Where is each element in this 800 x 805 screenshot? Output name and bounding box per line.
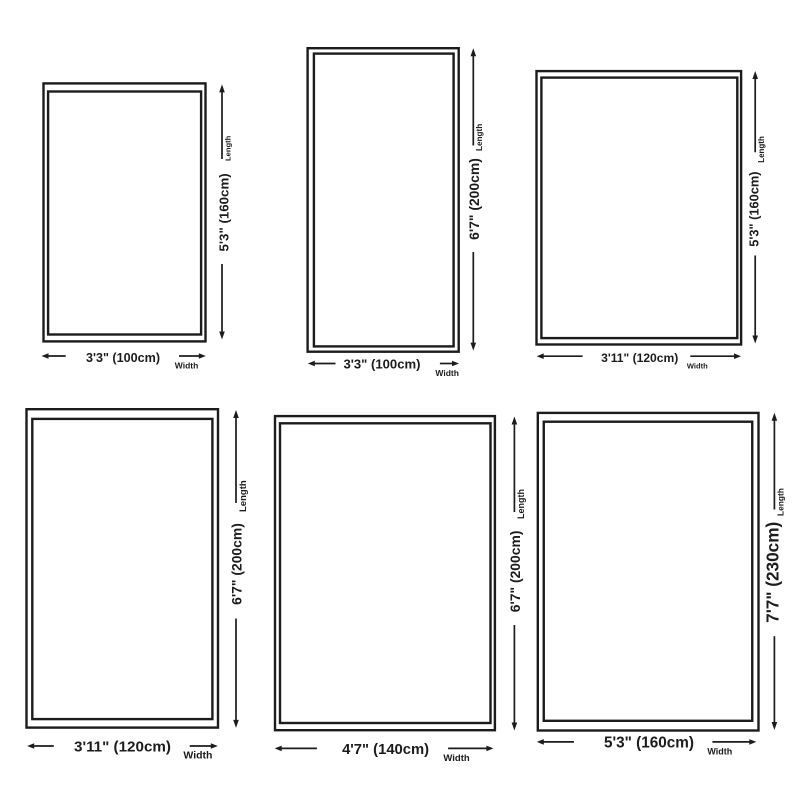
- svg-text:Width: Width: [443, 753, 469, 764]
- svg-text:5'3" (160cm): 5'3" (160cm): [747, 171, 762, 246]
- svg-text:Length: Length: [224, 135, 233, 161]
- svg-text:4'7" (140cm): 4'7" (140cm): [342, 742, 429, 758]
- svg-text:Length: Length: [757, 136, 766, 163]
- svg-text:Width: Width: [435, 368, 459, 378]
- svg-text:5'3" (160cm): 5'3" (160cm): [217, 173, 232, 251]
- svg-text:3'11" (120cm): 3'11" (120cm): [74, 739, 171, 756]
- svg-text:6'7" (200cm): 6'7" (200cm): [466, 158, 482, 240]
- svg-text:3'11" (120cm): 3'11" (120cm): [601, 351, 678, 365]
- svg-text:7'7" (230cm): 7'7" (230cm): [762, 522, 782, 623]
- svg-text:Length: Length: [516, 489, 526, 519]
- svg-text:Width: Width: [175, 361, 199, 371]
- svg-text:Length: Length: [238, 480, 249, 512]
- svg-text:Length: Length: [475, 124, 484, 151]
- svg-text:Width: Width: [707, 746, 732, 756]
- svg-text:Width: Width: [687, 362, 708, 371]
- svg-text:6'7" (200cm): 6'7" (200cm): [229, 523, 245, 605]
- svg-text:6'7" (200cm): 6'7" (200cm): [507, 531, 523, 613]
- svg-text:3'3" (100cm): 3'3" (100cm): [86, 351, 160, 365]
- svg-text:Length: Length: [775, 488, 785, 516]
- svg-text:3'3" (100cm): 3'3" (100cm): [343, 357, 420, 372]
- svg-text:5'3" (160cm): 5'3" (160cm): [604, 734, 694, 751]
- svg-text:Width: Width: [183, 750, 212, 762]
